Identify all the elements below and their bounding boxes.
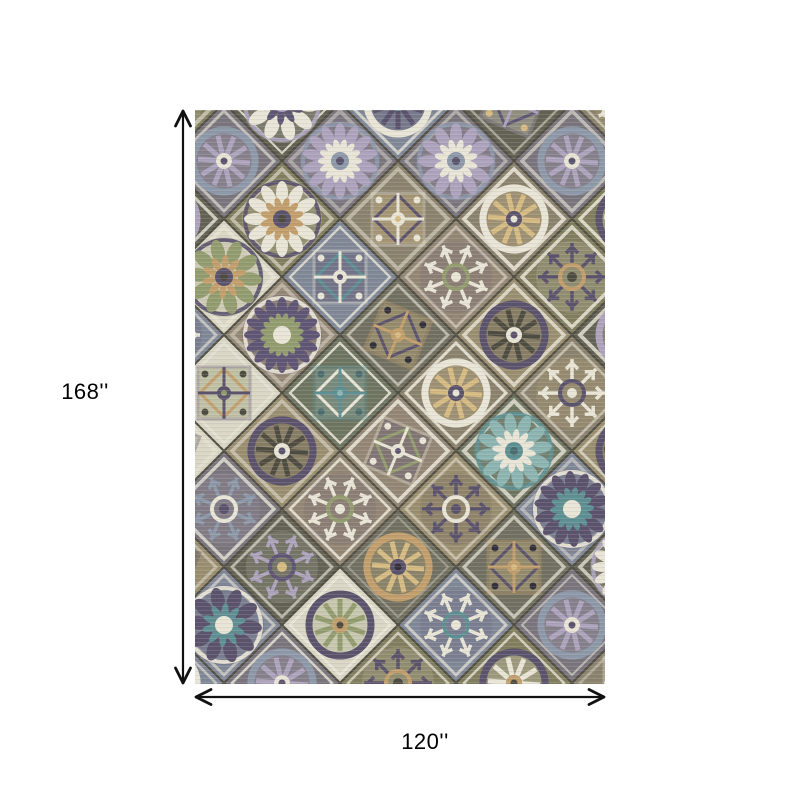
rug-image: [195, 110, 605, 684]
width-dimension-label: 120'': [401, 729, 449, 755]
height-dimension-label: 168'': [61, 379, 109, 405]
product-dimension-diagram: 168'' 120'': [0, 0, 800, 800]
rug-pattern: [195, 110, 605, 684]
width-arrow-head-left: [196, 690, 211, 705]
width-arrow-head-right: [589, 690, 604, 705]
height-arrow-head-top: [176, 111, 191, 126]
height-arrow-head-bottom: [176, 668, 191, 683]
